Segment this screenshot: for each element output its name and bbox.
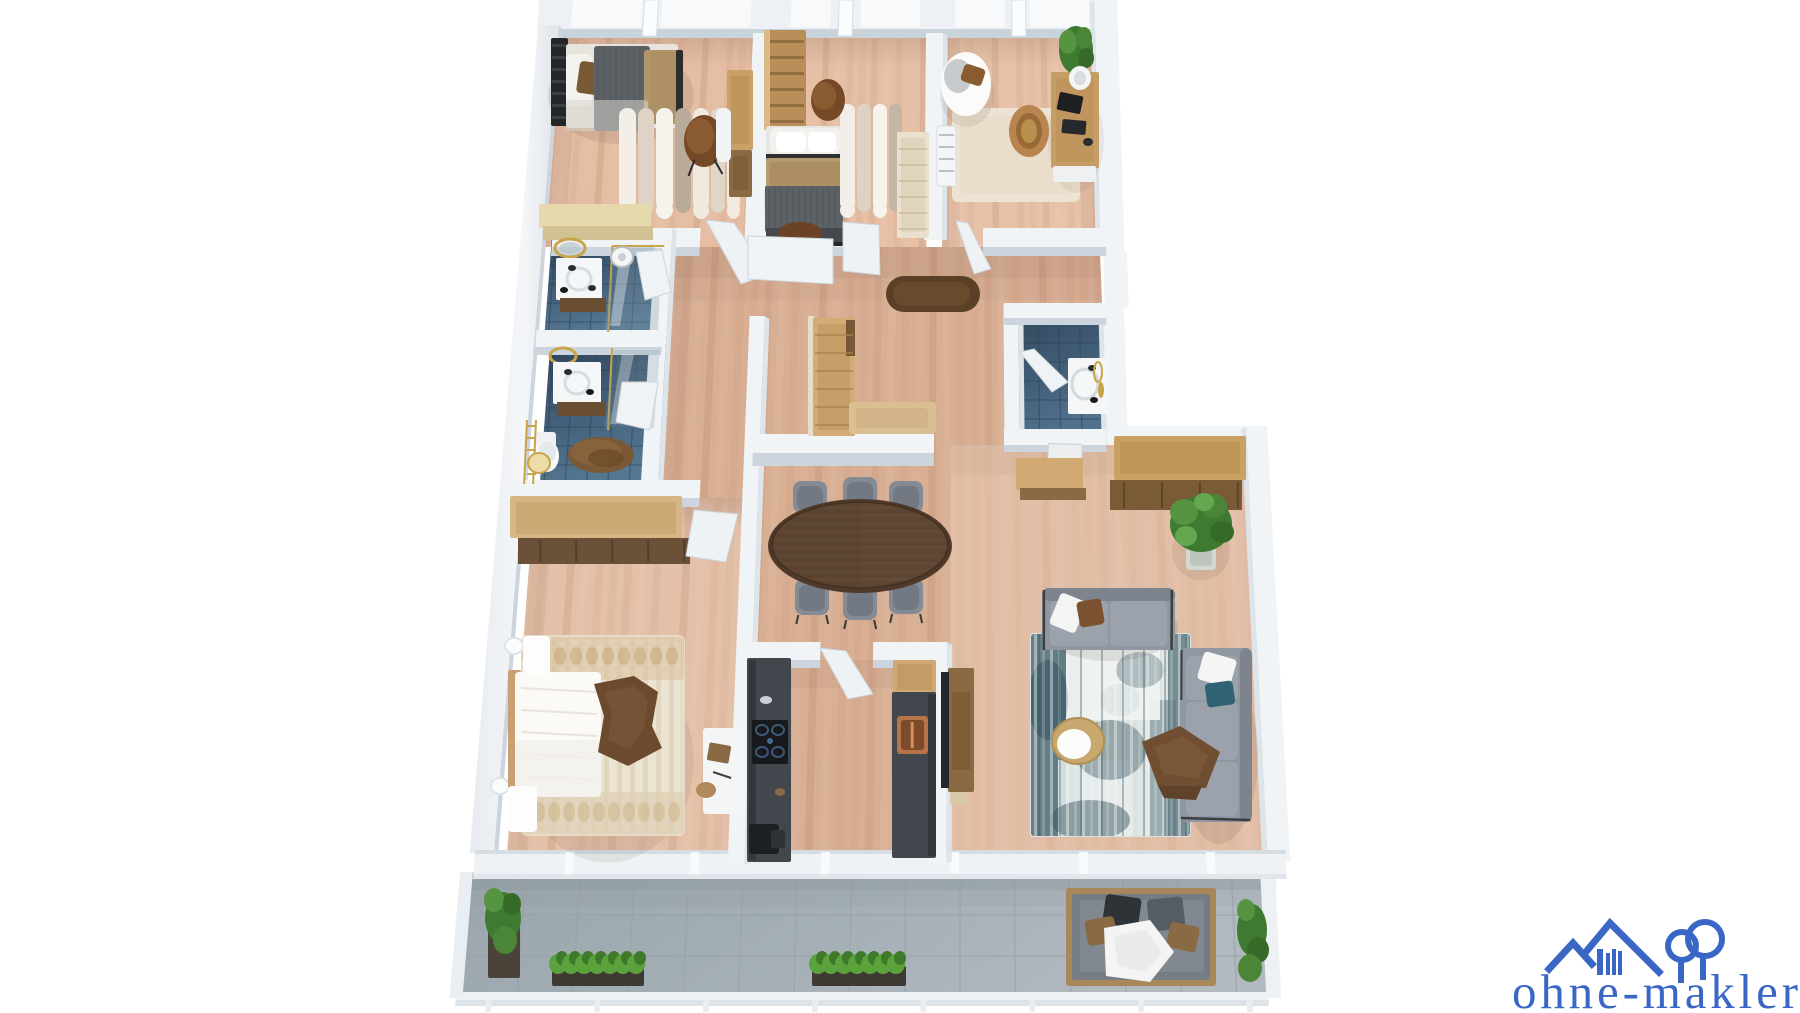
svg-text:ohne-makler: ohne-makler (1512, 964, 1798, 1013)
